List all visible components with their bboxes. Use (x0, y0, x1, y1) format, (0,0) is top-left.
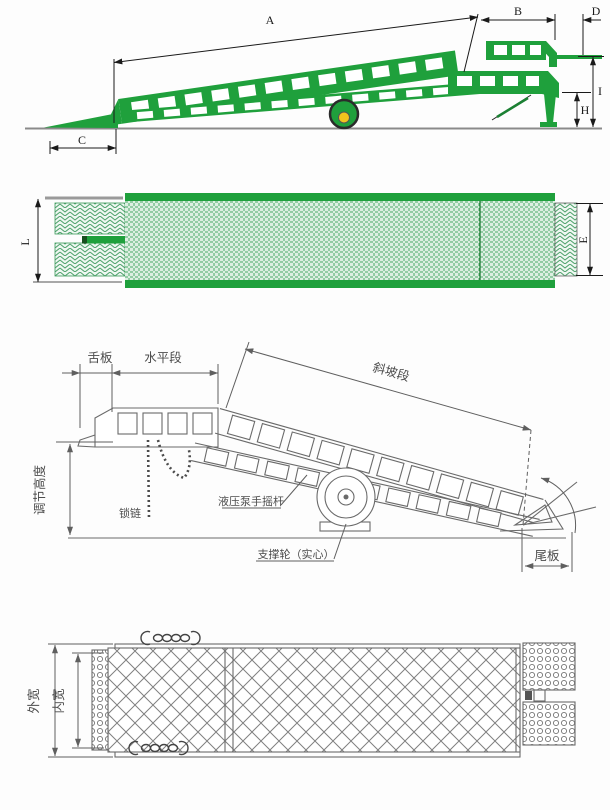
deck-side-rail-top (125, 193, 555, 201)
road-wheel (330, 100, 358, 128)
sketch-support-wheel (317, 468, 375, 531)
tongue-bar-cap (82, 236, 87, 244)
dim-label-a: A (266, 13, 275, 27)
sketch-deck-plan (92, 644, 520, 757)
chain-hanging (148, 440, 149, 520)
label-chain: 锁链 (119, 506, 141, 520)
tongue-plate-upper (55, 203, 125, 234)
wheel-hub (339, 112, 350, 123)
pump-crank (497, 98, 528, 117)
tail-swing-indicator (523, 430, 596, 533)
label-tail-plate: 尾板 (534, 549, 560, 563)
tongue-plate-plan-upper (523, 643, 575, 690)
left-edge-plate (92, 650, 108, 750)
label-hydraulic-pump-lever: 液压泵手摇杆 (218, 494, 284, 508)
label-horizontal-section: 水平段 (144, 350, 182, 365)
tongue-center-bar (86, 236, 125, 244)
ramp-technical-drawing-page: A B D I H C L E (0, 0, 610, 810)
label-tongue-plate: 舌板 (87, 351, 113, 365)
tongue-plate-lower (55, 243, 125, 276)
tongue-latch (525, 690, 545, 701)
dim-label-c: C (78, 133, 86, 147)
dim-label-b: B (514, 4, 522, 18)
sketch-side-view: 舌板 水平段 斜坡段 调节高度 锁链 液压泵手摇杆 支撑轮（实心） 尾板 (0, 300, 610, 600)
tail-plate-plan (555, 203, 577, 276)
dim-label-l: L (18, 238, 32, 245)
label-outer-width: 外宽 (26, 688, 41, 713)
plan-view: L E (0, 168, 610, 293)
label-slope-section: 斜坡段 (371, 359, 411, 384)
dim-label-e: E (576, 236, 590, 243)
sketch-plan-view: 外宽 内宽 (0, 615, 610, 810)
dim-label-h: H (581, 103, 590, 117)
ramp-body (44, 50, 559, 128)
label-adjustable-height: 调节高度 (32, 465, 47, 516)
detached-level-section (486, 41, 602, 67)
deck-plan (125, 193, 555, 288)
deck-side-rail-bottom (125, 280, 555, 288)
label-support-wheel: 支撑轮（实心） (258, 547, 335, 561)
tongue-plate-plan-lower (523, 702, 575, 745)
dim-label-i: I (598, 84, 602, 98)
side-elevation-view: A B D I H C (0, 0, 610, 168)
support-leg (544, 94, 556, 123)
safety-chain-top (141, 632, 200, 645)
dim-label-d: D (592, 4, 601, 18)
label-inner-width: 内宽 (51, 688, 66, 713)
